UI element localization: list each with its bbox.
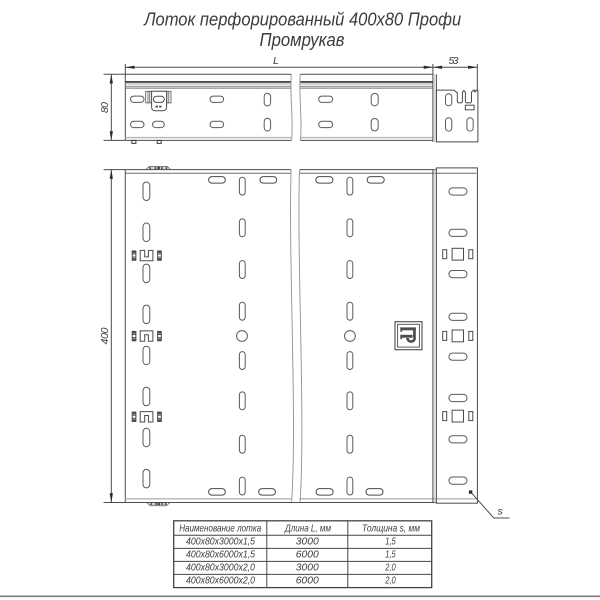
- svg-text:Толщина s, мм: Толщина s, мм: [362, 523, 420, 534]
- svg-text:80: 80: [99, 102, 111, 113]
- svg-text:6000: 6000: [296, 576, 319, 587]
- svg-text:400х80х3000х2,0: 400х80х3000х2,0: [186, 563, 255, 574]
- svg-text:6000: 6000: [296, 550, 319, 561]
- svg-text:400: 400: [99, 327, 111, 344]
- svg-text:Промрукав: Промрукав: [260, 30, 345, 50]
- svg-text:Длина L, мм: Длина L, мм: [284, 523, 331, 534]
- svg-text:Лоток перфорированный 400х80 П: Лоток перфорированный 400х80 Профи: [143, 10, 461, 30]
- svg-text:400х80х6000х2,0: 400х80х6000х2,0: [186, 576, 255, 587]
- svg-text:3000: 3000: [296, 537, 319, 548]
- svg-text:Наименование лотка: Наименование лотка: [179, 523, 261, 534]
- svg-text:1,5: 1,5: [385, 537, 396, 548]
- svg-text:2,0: 2,0: [385, 563, 396, 574]
- svg-text:1,5: 1,5: [385, 550, 396, 561]
- svg-text:53: 53: [449, 55, 459, 67]
- svg-text:400х80х6000х1,5: 400х80х6000х1,5: [186, 550, 255, 561]
- svg-text:2,0: 2,0: [385, 576, 396, 587]
- svg-text:s: s: [498, 506, 504, 518]
- svg-text:3000: 3000: [296, 563, 319, 574]
- svg-text:L: L: [273, 55, 279, 67]
- svg-text:400х80х3000х1,5: 400х80х3000х1,5: [186, 537, 255, 548]
